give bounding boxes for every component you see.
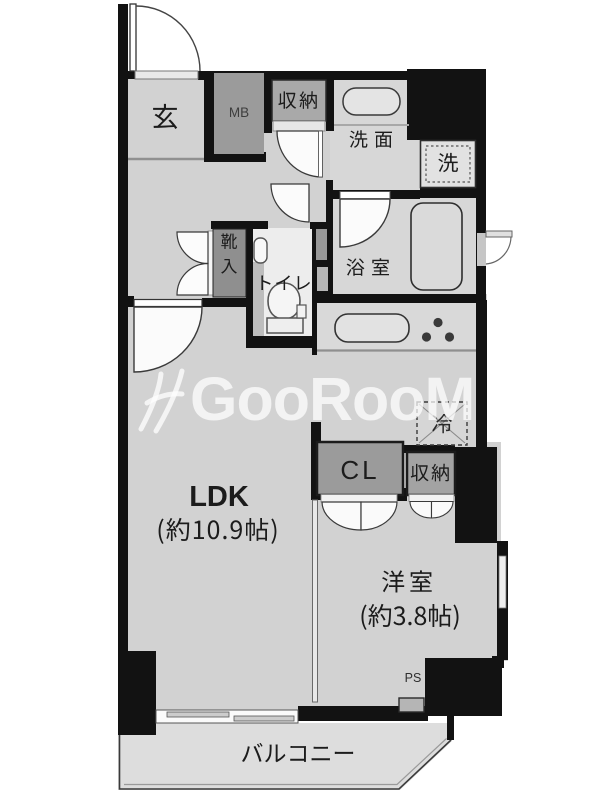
svg-text:LDK: LDK — [189, 481, 249, 513]
svg-text:CL: CL — [340, 455, 379, 485]
svg-text:MB: MB — [229, 105, 249, 120]
svg-text:GooRooM: GooRooM — [190, 365, 474, 433]
svg-text:PS: PS — [405, 671, 422, 685]
